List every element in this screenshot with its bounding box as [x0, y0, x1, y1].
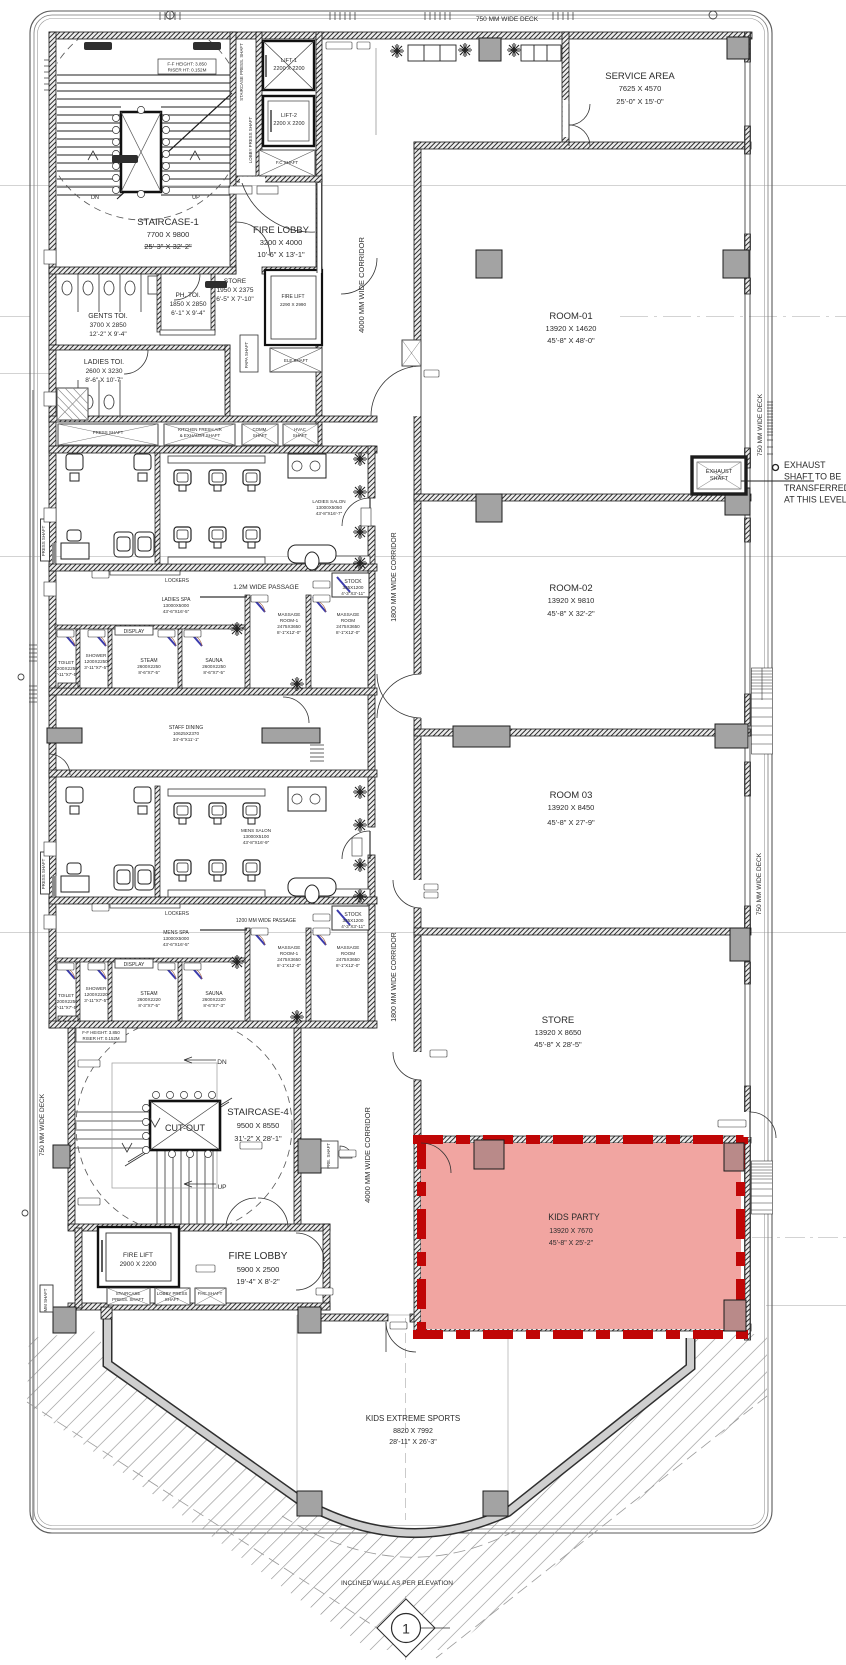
svg-text:13920 X 9810: 13920 X 9810: [548, 596, 595, 605]
svg-text:STAIRCASE-4: STAIRCASE-4: [227, 1107, 289, 1118]
svg-text:325X1200: 325X1200: [343, 918, 364, 923]
svg-text:3'-11"X7'-5": 3'-11"X7'-5": [84, 998, 108, 1003]
svg-text:ROOM-01: ROOM-01: [549, 311, 592, 322]
svg-text:DN: DN: [91, 195, 99, 201]
svg-text:45'-8" X 25'-2": 45'-8" X 25'-2": [549, 1240, 594, 1247]
svg-text:4'-3"X3'-11": 4'-3"X3'-11": [341, 924, 365, 929]
svg-text:INCLINED WALL AS PER ELEVATION: INCLINED WALL AS PER ELEVATION: [341, 1580, 453, 1587]
svg-text:ROOM: ROOM: [341, 951, 355, 956]
svg-text:SHAFT TO BE: SHAFT TO BE: [784, 472, 841, 482]
svg-text:750 MM WIDE DECK: 750 MM WIDE DECK: [39, 1093, 46, 1156]
svg-text:7700 X 9800: 7700 X 9800: [147, 230, 190, 239]
svg-text:PRESS. SHAFT: PRESS. SHAFT: [112, 1297, 144, 1302]
svg-text:4000 MM WIDE CORRIDOR: 4000 MM WIDE CORRIDOR: [363, 1107, 372, 1203]
svg-text:6'-1" X 9'-4": 6'-1" X 9'-4": [171, 310, 206, 317]
svg-text:45'-8" X 28'-5": 45'-8" X 28'-5": [534, 1040, 582, 1049]
svg-text:43'-8"X16'-7": 43'-8"X16'-7": [316, 511, 343, 516]
svg-text:RISER HT: 0.152M: RISER HT: 0.152M: [168, 68, 207, 73]
svg-text:KIDS EXTREME SPORTS: KIDS EXTREME SPORTS: [366, 1414, 461, 1423]
svg-text:13000X5100: 13000X5100: [243, 834, 270, 839]
svg-text:2290 X 2990: 2290 X 2990: [280, 302, 307, 307]
svg-text:1800 MM WIDE CORRIDOR: 1800 MM WIDE CORRIDOR: [391, 932, 398, 1021]
svg-text:13920 X 8450: 13920 X 8450: [548, 803, 595, 812]
svg-text:12'-2" X 9'-4": 12'-2" X 9'-4": [89, 331, 127, 338]
svg-text:GENTS TOI.: GENTS TOI.: [88, 313, 127, 320]
svg-text:LOBBY PRESS SHAFT: LOBBY PRESS SHAFT: [248, 117, 253, 164]
svg-text:SHAFT: SHAFT: [253, 433, 268, 438]
svg-text:1200X2250: 1200X2250: [54, 666, 78, 671]
svg-text:8'-3"X7'-5": 8'-3"X7'-5": [138, 1003, 160, 1008]
svg-text:8'-6"X7'-5": 8'-6"X7'-5": [203, 670, 225, 675]
svg-text:2900 X 2200: 2900 X 2200: [120, 1261, 157, 1268]
svg-text:FIRE LOBBY: FIRE LOBBY: [229, 1251, 288, 1262]
svg-text:LADIES SALON: LADIES SALON: [312, 499, 345, 504]
svg-text:1200X2250: 1200X2250: [54, 999, 78, 1004]
svg-text:2475X3650: 2475X3650: [277, 624, 301, 629]
svg-text:STORE: STORE: [542, 1015, 575, 1026]
svg-text:LIFT-2: LIFT-2: [281, 113, 297, 119]
svg-text:8'-1"X12'-0": 8'-1"X12'-0": [277, 630, 301, 635]
svg-text:2600X2220: 2600X2220: [137, 997, 161, 1002]
svg-text:43'-6"X16'-5": 43'-6"X16'-5": [163, 942, 190, 947]
svg-text:FHC SHAFT: FHC SHAFT: [198, 1291, 223, 1296]
svg-text:8'-1"X12'-0": 8'-1"X12'-0": [277, 963, 301, 968]
svg-text:43'-6"X16'-5": 43'-6"X16'-5": [163, 609, 190, 614]
svg-text:4'-3"X3'-11": 4'-3"X3'-11": [341, 591, 365, 596]
svg-text:TOILET: TOILET: [58, 993, 74, 998]
svg-text:FIRE LIFT: FIRE LIFT: [123, 1252, 153, 1259]
svg-text:UP: UP: [217, 1184, 226, 1191]
svg-text:25'-0" X 15'-0": 25'-0" X 15'-0": [616, 97, 664, 106]
svg-text:AT THIS LEVEL: AT THIS LEVEL: [784, 495, 846, 505]
svg-text:2475X3650: 2475X3650: [277, 957, 301, 962]
svg-text:MM SHAFT: MM SHAFT: [43, 1288, 48, 1311]
svg-text:PRESS SHAFT: PRESS SHAFT: [41, 525, 46, 556]
svg-text:STAIRCASE PRESS. SHAFT: STAIRCASE PRESS. SHAFT: [239, 43, 244, 101]
svg-text:31'-2" X 28'-1": 31'-2" X 28'-1": [234, 1134, 282, 1143]
svg-text:43'-8"X16'-9": 43'-8"X16'-9": [243, 840, 270, 845]
svg-text:KIDS PARTY: KIDS PARTY: [548, 1212, 600, 1222]
svg-text:28'-11" X 26'-3": 28'-11" X 26'-3": [389, 1439, 437, 1446]
svg-text:SHOWER: SHOWER: [86, 653, 107, 658]
svg-text:MASSAGE: MASSAGE: [337, 612, 360, 617]
svg-text:13000X5000: 13000X5000: [163, 603, 190, 608]
svg-text:TOILET: TOILET: [58, 660, 74, 665]
svg-text:CUT-OUT: CUT-OUT: [165, 1123, 205, 1133]
svg-text:7625 X 4570: 7625 X 4570: [619, 84, 662, 93]
svg-text:F-F HEIGHT: 3.850: F-F HEIGHT: 3.850: [82, 1030, 120, 1035]
svg-text:MASSAGE: MASSAGE: [278, 612, 301, 617]
svg-text:LOCKERS: LOCKERS: [165, 911, 190, 917]
svg-text:SHOWER: SHOWER: [86, 986, 107, 991]
svg-text:1200X2250: 1200X2250: [84, 659, 108, 664]
svg-text:SHAFT: SHAFT: [165, 1297, 180, 1302]
svg-text:ROOM-1: ROOM-1: [280, 951, 299, 956]
svg-text:8820 X 7992: 8820 X 7992: [393, 1428, 433, 1435]
svg-text:LOBBY PRESS: LOBBY PRESS: [157, 1291, 188, 1296]
svg-text:DN: DN: [217, 1059, 227, 1066]
svg-text:8'-6"X7'-5": 8'-6"X7'-5": [138, 670, 160, 675]
svg-text:34'-6"X11'-1": 34'-6"X11'-1": [173, 737, 199, 742]
svg-text:ROOM 03: ROOM 03: [550, 790, 593, 801]
svg-text:5900 X 2500: 5900 X 2500: [237, 1265, 280, 1274]
svg-text:13920 X 7670: 13920 X 7670: [549, 1228, 593, 1235]
svg-text:1800 MM WIDE CORRIDOR: 1800 MM WIDE CORRIDOR: [391, 532, 398, 621]
svg-text:LADIES TOI.: LADIES TOI.: [84, 359, 124, 366]
svg-text:750 MM WIDE DECK: 750 MM WIDE DECK: [756, 852, 763, 915]
svg-text:STAIRCASE-1: STAIRCASE-1: [137, 217, 199, 228]
svg-text:MASSAGE: MASSAGE: [278, 945, 301, 950]
svg-text:6'-5" X 7'-10": 6'-5" X 7'-10": [216, 296, 254, 303]
svg-text:FIRE LIFT: FIRE LIFT: [281, 294, 304, 300]
svg-text:8'-6"X7'-3": 8'-6"X7'-3": [203, 1003, 225, 1008]
svg-text:2200 X 2200: 2200 X 2200: [273, 66, 304, 72]
svg-text:MASSAGE: MASSAGE: [337, 945, 360, 950]
svg-text:PH. TOI.: PH. TOI.: [175, 292, 200, 299]
svg-text:1200 MM WIDE PASSAGE: 1200 MM WIDE PASSAGE: [236, 918, 297, 924]
svg-text:7'-11"X7'-5": 7'-11"X7'-5": [54, 672, 78, 677]
svg-text:45'-8" X 32'-2": 45'-8" X 32'-2": [547, 609, 595, 618]
svg-text:TRANSFERRED: TRANSFERRED: [784, 483, 846, 493]
svg-text:STORE: STORE: [224, 278, 247, 285]
svg-text:FIRE LOBBY: FIRE LOBBY: [253, 225, 310, 236]
svg-text:10'-6" X 13'-1": 10'-6" X 13'-1": [257, 250, 305, 259]
svg-text:13920 X 8650: 13920 X 8650: [535, 1028, 582, 1037]
svg-text:ROOM-02: ROOM-02: [549, 583, 592, 594]
svg-text:8'-1"X12'-0": 8'-1"X12'-0": [336, 963, 360, 968]
svg-text:2600X2250: 2600X2250: [202, 664, 226, 669]
svg-text:& EXHAUST SHAFT: & EXHAUST SHAFT: [180, 433, 221, 438]
svg-text:2475X3650: 2475X3650: [336, 624, 360, 629]
svg-text:13920 X 14620: 13920 X 14620: [546, 324, 597, 333]
svg-text:DISPLAY: DISPLAY: [124, 629, 145, 635]
svg-text:SERVICE AREA: SERVICE AREA: [605, 71, 675, 82]
svg-text:EXHAUST: EXHAUST: [784, 460, 826, 470]
svg-text:ROOM: ROOM: [341, 618, 355, 623]
svg-text:45'-8" X 48'-0": 45'-8" X 48'-0": [547, 336, 595, 345]
svg-text:1950 X 2375: 1950 X 2375: [217, 287, 254, 294]
svg-text:SHAFT: SHAFT: [293, 433, 308, 438]
svg-text:2600 X 3230: 2600 X 3230: [86, 368, 123, 375]
svg-text:325X1200: 325X1200: [343, 585, 364, 590]
svg-text:ELE SHAFT: ELE SHAFT: [284, 358, 308, 363]
svg-text:LOCKERS: LOCKERS: [165, 578, 190, 584]
svg-text:ROOM-1: ROOM-1: [280, 618, 299, 623]
svg-text:RISER HT: 0.152M: RISER HT: 0.152M: [82, 1036, 119, 1041]
svg-text:COMM.: COMM.: [252, 427, 267, 432]
svg-text:EXHAUST: EXHAUST: [706, 469, 733, 475]
svg-text:1200X2220: 1200X2220: [84, 992, 108, 997]
svg-text:13000X5000: 13000X5000: [163, 936, 190, 941]
svg-text:8'-6" X 10'-7": 8'-6" X 10'-7": [85, 377, 123, 384]
svg-text:MENS SALON: MENS SALON: [241, 828, 271, 833]
svg-text:750 MM WIDE DECK: 750 MM WIDE DECK: [476, 16, 539, 23]
svg-text:4000 MM WIDE CORRIDOR: 4000 MM WIDE CORRIDOR: [357, 237, 366, 333]
svg-text:2600X2220: 2600X2220: [202, 997, 226, 1002]
svg-text:LIFT-1: LIFT-1: [281, 58, 297, 64]
svg-text:2600X2250: 2600X2250: [137, 664, 161, 669]
svg-text:1.2M WIDE PASSAGE: 1.2M WIDE PASSAGE: [233, 584, 299, 591]
svg-text:25'-3" X 32'-2": 25'-3" X 32'-2": [144, 242, 192, 251]
svg-text:8'-1"X12'-0": 8'-1"X12'-0": [336, 630, 360, 635]
svg-text:STAIRCASE: STAIRCASE: [116, 1291, 141, 1296]
svg-text:9500 X 8550: 9500 X 8550: [237, 1121, 280, 1130]
svg-text:PAPA SHAFT: PAPA SHAFT: [244, 341, 249, 368]
svg-text:19'-4" X 8'-2": 19'-4" X 8'-2": [236, 1277, 280, 1286]
svg-text:DISPLAY: DISPLAY: [124, 962, 145, 968]
svg-text:3200 X 4000: 3200 X 4000: [260, 238, 303, 247]
svg-text:7'-11"X7'-5": 7'-11"X7'-5": [54, 1005, 78, 1010]
svg-text:2475X3650: 2475X3650: [336, 957, 360, 962]
svg-text:KITCHEN FRESH AIR: KITCHEN FRESH AIR: [178, 427, 222, 432]
svg-text:PRESS SHAFT: PRESS SHAFT: [41, 858, 46, 889]
svg-text:2200 X 2200: 2200 X 2200: [273, 121, 304, 127]
svg-text:750 MM WIDE DECK: 750 MM WIDE DECK: [757, 393, 764, 456]
svg-text:F-F HEIGHT: 3.850: F-F HEIGHT: 3.850: [167, 62, 207, 67]
svg-text:PRESS SHAFT: PRESS SHAFT: [93, 430, 124, 435]
svg-text:HVAC: HVAC: [294, 427, 306, 432]
svg-text:10625X2370: 10625X2370: [173, 731, 200, 736]
svg-text:1850 X 2850: 1850 X 2850: [170, 301, 207, 308]
svg-text:SHAFT: SHAFT: [710, 476, 729, 482]
svg-text:F.C SHAFT: F.C SHAFT: [276, 160, 299, 165]
svg-text:3700 X 2850: 3700 X 2850: [90, 322, 127, 329]
svg-text:PRE. SHAFT: PRE. SHAFT: [326, 1143, 331, 1169]
svg-text:1: 1: [402, 1621, 410, 1637]
svg-text:3'-11"X7'-5": 3'-11"X7'-5": [84, 665, 108, 670]
svg-text:45'-8" X 27'-9": 45'-8" X 27'-9": [547, 818, 595, 827]
svg-text:13000X5050: 13000X5050: [316, 505, 343, 510]
svg-text:UP: UP: [192, 195, 200, 201]
